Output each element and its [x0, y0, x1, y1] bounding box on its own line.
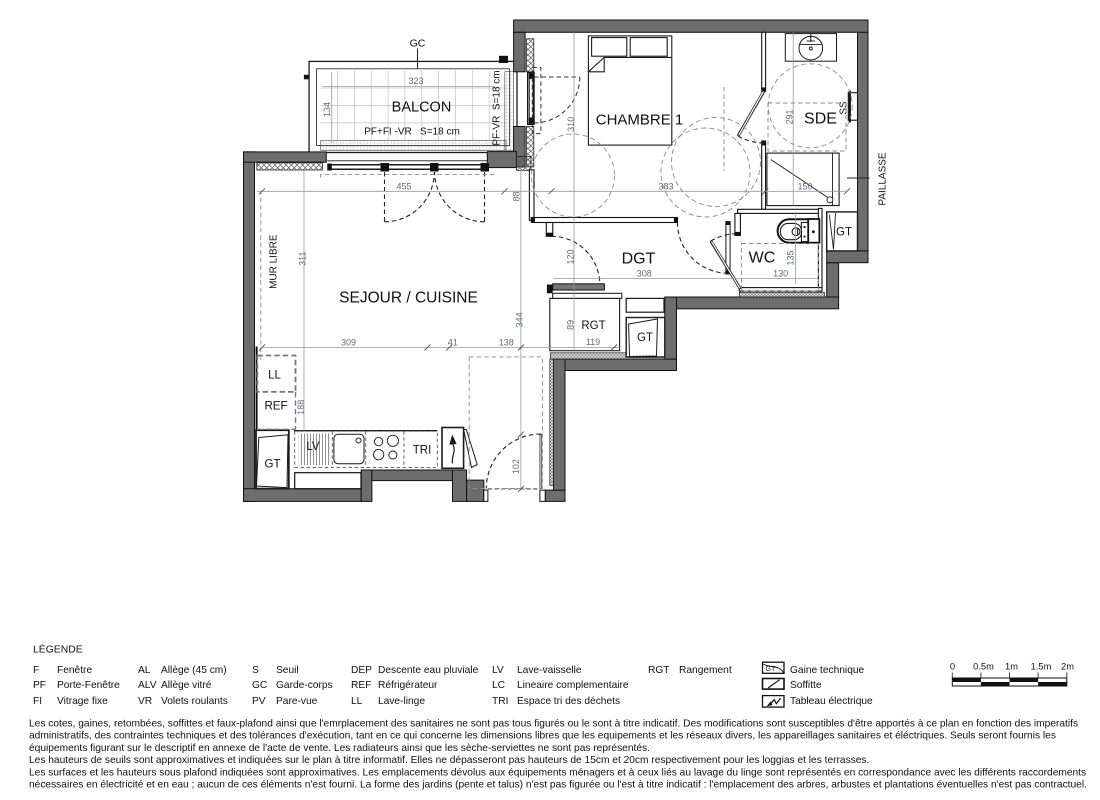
svg-text:41: 41 [448, 337, 458, 347]
svg-text:150: 150 [797, 181, 812, 191]
svg-text:310: 310 [566, 117, 576, 132]
svg-text:Lave-vaisselle: Lave-vaisselle [517, 665, 582, 676]
svg-text:Les cotes, gaines, retombées,: Les cotes, gaines, retombées, soffittes … [29, 719, 1078, 730]
svg-text:Allège vitré: Allège vitré [161, 680, 212, 691]
svg-text:RGT: RGT [648, 665, 670, 676]
svg-text:311: 311 [298, 252, 308, 266]
svg-text:GC: GC [252, 680, 267, 691]
svg-text:138: 138 [499, 337, 514, 347]
svg-text:WC: WC [749, 250, 776, 267]
svg-text:MUR LIBRE: MUR LIBRE [269, 234, 280, 289]
svg-text:344: 344 [515, 312, 525, 327]
svg-text:Rangement: Rangement [679, 665, 732, 676]
svg-text:2m: 2m [1061, 662, 1074, 672]
svg-text:Seuil: Seuil [276, 665, 299, 676]
svg-text:TRI: TRI [413, 445, 432, 457]
svg-text:Lineaire complementaire: Lineaire complementaire [517, 680, 629, 691]
svg-text:équipements figurant sur le de: équipements figurant sur le descriptif e… [29, 743, 650, 754]
svg-text:Espace tri des déchets: Espace tri des déchets [517, 696, 620, 707]
svg-text:134: 134 [322, 102, 332, 117]
svg-text:Pare-vue: Pare-vue [276, 696, 318, 707]
svg-text:LV: LV [492, 665, 504, 676]
svg-text:S: S [252, 665, 259, 676]
svg-text:291: 291 [785, 109, 795, 124]
svg-text:383: 383 [658, 181, 673, 191]
svg-text:Tableau électrique: Tableau électrique [790, 696, 873, 707]
svg-text:308: 308 [637, 268, 652, 278]
svg-text:Allège (45 cm): Allège (45 cm) [161, 665, 227, 676]
svg-text:ALV: ALV [138, 680, 157, 691]
svg-text:309: 309 [341, 337, 356, 347]
svg-text:188: 188 [296, 400, 306, 415]
svg-text:0.5m: 0.5m [973, 662, 994, 672]
svg-text:88: 88 [512, 191, 522, 201]
svg-text:nécessaires en électricité et: nécessaires en électricité et en eau ; a… [29, 780, 1087, 791]
svg-text:Garde-corps: Garde-corps [276, 680, 333, 691]
svg-text:FI: FI [33, 696, 42, 707]
svg-text:VR: VR [138, 696, 152, 707]
svg-text:RGT: RGT [581, 320, 605, 332]
svg-text:SEJOUR / CUISINE: SEJOUR / CUISINE [339, 290, 478, 307]
svg-text:Réfrigérateur: Réfrigérateur [378, 680, 438, 691]
svg-text:Porte-Fenêtre: Porte-Fenêtre [57, 680, 120, 691]
svg-text:PF: PF [33, 680, 46, 691]
svg-text:Gaine technique: Gaine technique [790, 665, 865, 676]
svg-text:TRI: TRI [492, 696, 508, 707]
svg-text:GT: GT [265, 459, 281, 471]
svg-text:0: 0 [950, 662, 955, 672]
svg-text:1.5m: 1.5m [1031, 662, 1052, 672]
svg-text:Lave-linge: Lave-linge [378, 696, 425, 707]
svg-text:Les hauteurs de seuils sont ap: Les hauteurs de seuils sont approximativ… [29, 755, 869, 766]
svg-text:102: 102 [511, 459, 521, 474]
svg-text:LL: LL [351, 696, 363, 707]
svg-text:LL: LL [268, 370, 281, 382]
svg-text:PF+FI -VR S=18 cm: PF+FI -VR S=18 cm [364, 127, 460, 138]
svg-text:Vitrage fixe: Vitrage fixe [57, 696, 108, 707]
svg-text:GC: GC [410, 38, 426, 50]
svg-text:SDE: SDE [804, 111, 837, 128]
svg-text:BALCON: BALCON [392, 100, 452, 116]
svg-text:F: F [33, 665, 39, 676]
svg-text:119: 119 [586, 337, 600, 347]
svg-text:LV: LV [306, 441, 320, 453]
svg-text:CHAMBRE 1: CHAMBRE 1 [596, 112, 684, 129]
svg-text:GT: GT [637, 332, 653, 344]
svg-text:PF-VR S=18 cm: PF-VR S=18 cm [492, 70, 503, 145]
svg-text:323: 323 [408, 76, 423, 86]
svg-text:130: 130 [773, 268, 788, 278]
svg-text:LÉGENDE: LÉGENDE [33, 643, 83, 656]
svg-text:Volets roulants: Volets roulants [161, 696, 228, 707]
svg-text:GT: GT [836, 227, 852, 239]
svg-text:1m: 1m [1005, 662, 1018, 672]
svg-text:Les surfaces et les hauteurs s: Les surfaces et les hauteurs sous plafon… [29, 767, 1086, 778]
svg-text:Descente eau pluviale: Descente eau pluviale [378, 665, 479, 676]
svg-text:Soffitte: Soffitte [790, 680, 822, 691]
svg-text:REF: REF [265, 401, 288, 413]
svg-text:REF: REF [351, 680, 371, 691]
svg-text:89: 89 [565, 320, 575, 330]
svg-text:135: 135 [786, 250, 796, 265]
svg-text:PV: PV [252, 696, 266, 707]
svg-text:AL: AL [138, 665, 151, 676]
svg-text:455: 455 [396, 181, 411, 191]
svg-text:administratifs, des contrainte: administratifs, des contraintes techniqu… [29, 731, 1056, 742]
svg-text:DGT: DGT [622, 251, 656, 268]
svg-text:120: 120 [566, 249, 576, 264]
svg-text:LC: LC [492, 680, 505, 691]
svg-text:DEP: DEP [351, 665, 372, 676]
svg-text:Fenêtre: Fenêtre [57, 665, 92, 676]
svg-text:PAILLASSE: PAILLASSE [878, 152, 889, 206]
